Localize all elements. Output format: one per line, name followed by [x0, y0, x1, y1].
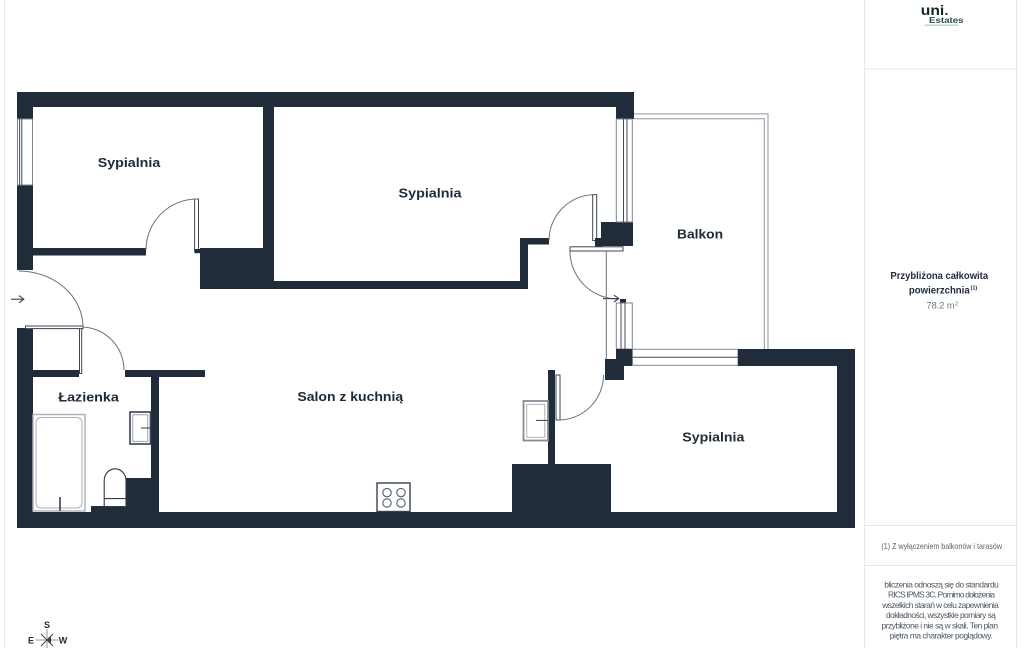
svg-text:dokładności, wszystkie pomiary: dokładności, wszystkie pomiary są	[886, 610, 996, 620]
svg-text:Sypialnia: Sypialnia	[98, 155, 161, 170]
svg-text:Sypialnia: Sypialnia	[682, 430, 745, 445]
svg-text:S: S	[44, 620, 50, 630]
svg-text:powierzchnia: powierzchnia	[909, 286, 970, 297]
svg-text:(1): (1)	[971, 286, 978, 292]
svg-text:Łazienka: Łazienka	[58, 390, 119, 405]
svg-text:Salon z kuchnią: Salon z kuchnią	[297, 389, 403, 404]
svg-text:piętra ma charakter poglądowy.: piętra ma charakter poglądowy.	[890, 631, 993, 641]
svg-text:Sypialnia: Sypialnia	[399, 185, 463, 200]
svg-text:RICS IPMS 3C. Pomimo dołożenia: RICS IPMS 3C. Pomimo dołożenia	[888, 590, 995, 600]
svg-text:Przybliżona całkowita: Przybliżona całkowita	[890, 271, 988, 282]
svg-text:(1) Z wyłączeniem balkonów i t: (1) Z wyłączeniem balkonów i tarasów	[881, 542, 1002, 551]
svg-text:wszelkich starań w celu zapewn: wszelkich starań w celu zapewnienia	[881, 600, 999, 610]
svg-text:E: E	[28, 636, 34, 646]
svg-text:bliczenia odnoszą się do stand: bliczenia odnoszą się do standardu	[884, 580, 999, 590]
svg-text:W: W	[59, 636, 68, 646]
svg-text:przybliżone i nie są w skali.: przybliżone i nie są w skali. Ten plan	[882, 620, 999, 630]
svg-text:2: 2	[955, 302, 958, 308]
svg-text:Estates: Estates	[929, 15, 964, 25]
svg-text:Balkon: Balkon	[677, 227, 723, 242]
svg-text:78.2 m: 78.2 m	[927, 300, 955, 310]
